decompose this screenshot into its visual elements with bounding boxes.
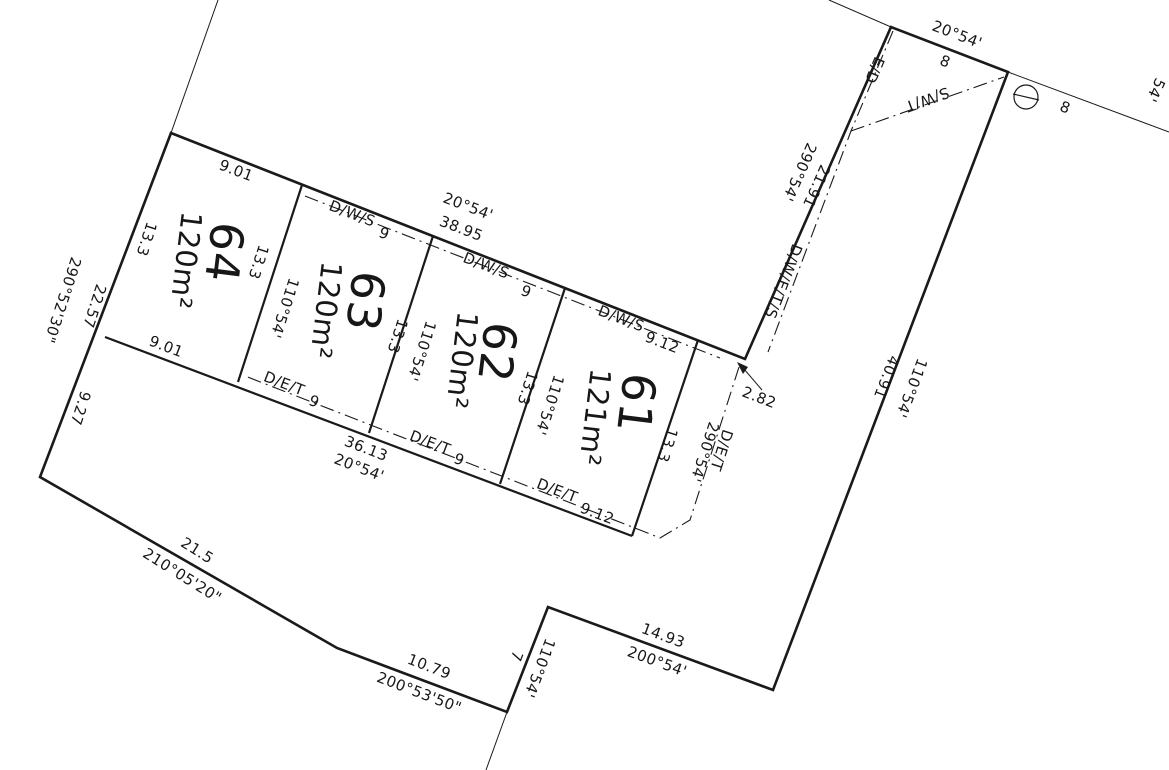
dim-sw-distance: 21.5 [178,534,217,568]
easement-label-dws-2: D/W/S [461,249,512,283]
dim-div1-bearing: 110°54' [266,276,302,341]
dim-south2-distance: 7 [506,648,526,664]
dim-south3-distance: 14.93 [639,619,687,651]
subdivision-survey-plan: 64 120m² 63 120m² 62 120m² 61 121m² 9.01… [0,0,1169,770]
dim-ne-road-bearing: 20°54' [930,17,985,53]
easement-width-1: 9 [376,223,392,243]
easement-det-w1: 9 [306,391,322,411]
extension-line-north [829,0,891,27]
lot-61-area: 121m² [572,367,618,468]
extension-line-south [486,712,507,770]
easement-det-w2: 9 [451,449,467,469]
easement-label-dws-1: D/W/S [327,197,378,231]
dim-south2-bearing: 110°54' [520,636,559,700]
lot-62-area: 120m² [439,310,485,411]
easement-label-det-1: D/E/T [261,368,307,400]
dim-lot64-frontage: 9.01 [217,156,256,185]
dim-ne-frontage-a: 8 [937,51,953,71]
dim-west-bearing: 290°52'30" [40,255,85,346]
easement-width-2: 9 [518,281,534,301]
dim-south1-bearing: 200°53'50" [374,668,464,717]
easement-label-swt: S/W/T [902,83,951,116]
road-continuation-line [1008,72,1169,132]
plan-drawing: 64 120m² 63 120m² 62 120m² 61 121m² 9.01… [0,0,1169,770]
parcel-outer-boundary [40,27,1008,712]
dim-east-distance: 40.91 [870,353,903,401]
lot-64-area: 120m² [163,210,209,311]
extension-line-northwest [171,0,218,133]
lot-63-area: 120m² [303,260,349,361]
dim-lot64-rear: 9.01 [147,332,186,361]
easement-label-ed: E/D [861,54,888,86]
dim-south1-distance: 10.79 [405,650,453,683]
dim-ne-frontage-b: 8 [1057,97,1073,117]
dim-sliver-2-82: 2.82 [740,383,779,412]
circle-minus-mark-icon [1013,85,1039,109]
easement-label-dws-3: D/W/S [596,302,647,336]
easement-label-dwets: D/W/E/T/S [761,241,806,321]
lots-rear-boundary [105,337,632,536]
dim-edge-bearing-cut: 54' [1142,75,1169,105]
